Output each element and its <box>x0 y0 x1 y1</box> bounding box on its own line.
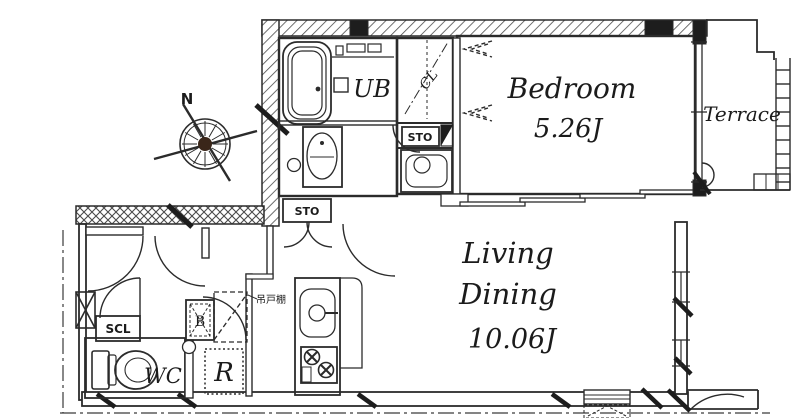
utility-b-label: B <box>195 314 205 330</box>
bedroom-folding-door-marks <box>464 41 492 121</box>
pipe-column <box>183 340 196 398</box>
shoe-closet-door <box>100 278 140 318</box>
wall-seg-black-2 <box>645 20 673 36</box>
hall-pillar <box>202 228 209 258</box>
washing-machine-pan <box>401 150 452 192</box>
toilet-label: WC <box>144 364 182 388</box>
hall-ld-wall-joint <box>246 274 273 279</box>
wall-top <box>262 20 707 36</box>
living-label: Living <box>461 236 553 270</box>
entrance-door <box>86 227 143 291</box>
shelf-box <box>441 125 453 146</box>
refrigerator-label: R <box>213 358 234 388</box>
shower-shelf <box>332 44 394 57</box>
bathtub <box>283 42 331 124</box>
north-label: N <box>181 90 194 108</box>
wall-seg-black-1 <box>350 20 368 36</box>
hanging-cupboard-label: 吊戸棚 <box>256 293 286 306</box>
unit-bath-label: UB <box>353 75 391 103</box>
bottom-right-corridor <box>687 390 758 410</box>
floor-plan: N Bedroom 5.26J Terrace Living Dining 10… <box>0 0 800 418</box>
ld-door-arc <box>343 224 395 276</box>
ld-area-label: 10.06J <box>468 324 558 355</box>
compass <box>154 104 257 181</box>
terrace-label: Terrace <box>703 102 781 126</box>
bedroom-left-wall <box>453 38 460 194</box>
closet-label: CL <box>417 67 442 93</box>
toilet-tank <box>92 351 109 389</box>
bathroom-outline <box>279 38 397 196</box>
compass-center <box>198 137 212 151</box>
storage-double-doors <box>284 222 332 247</box>
storage-hall-label: STO <box>295 205 320 218</box>
bedroom-label: Bedroom <box>507 72 637 105</box>
kitchen-stove <box>301 347 337 383</box>
sliding-partition <box>441 190 697 206</box>
bedroom-area-label: 5.26J <box>534 114 604 144</box>
dining-label: Dining <box>458 277 557 311</box>
floor-plan-drawing: N Bedroom 5.26J Terrace Living Dining 10… <box>0 0 800 418</box>
storage-upper-label: STO <box>408 131 433 144</box>
hall-ld-wall-upper <box>267 226 273 278</box>
ub-control-box <box>334 78 348 92</box>
washbasin <box>288 127 343 187</box>
ld-bottom-window <box>584 390 630 418</box>
shoe-closet-label: SCL <box>105 322 130 336</box>
kitchen-counter <box>295 278 362 395</box>
hall-door-arc <box>155 236 205 286</box>
